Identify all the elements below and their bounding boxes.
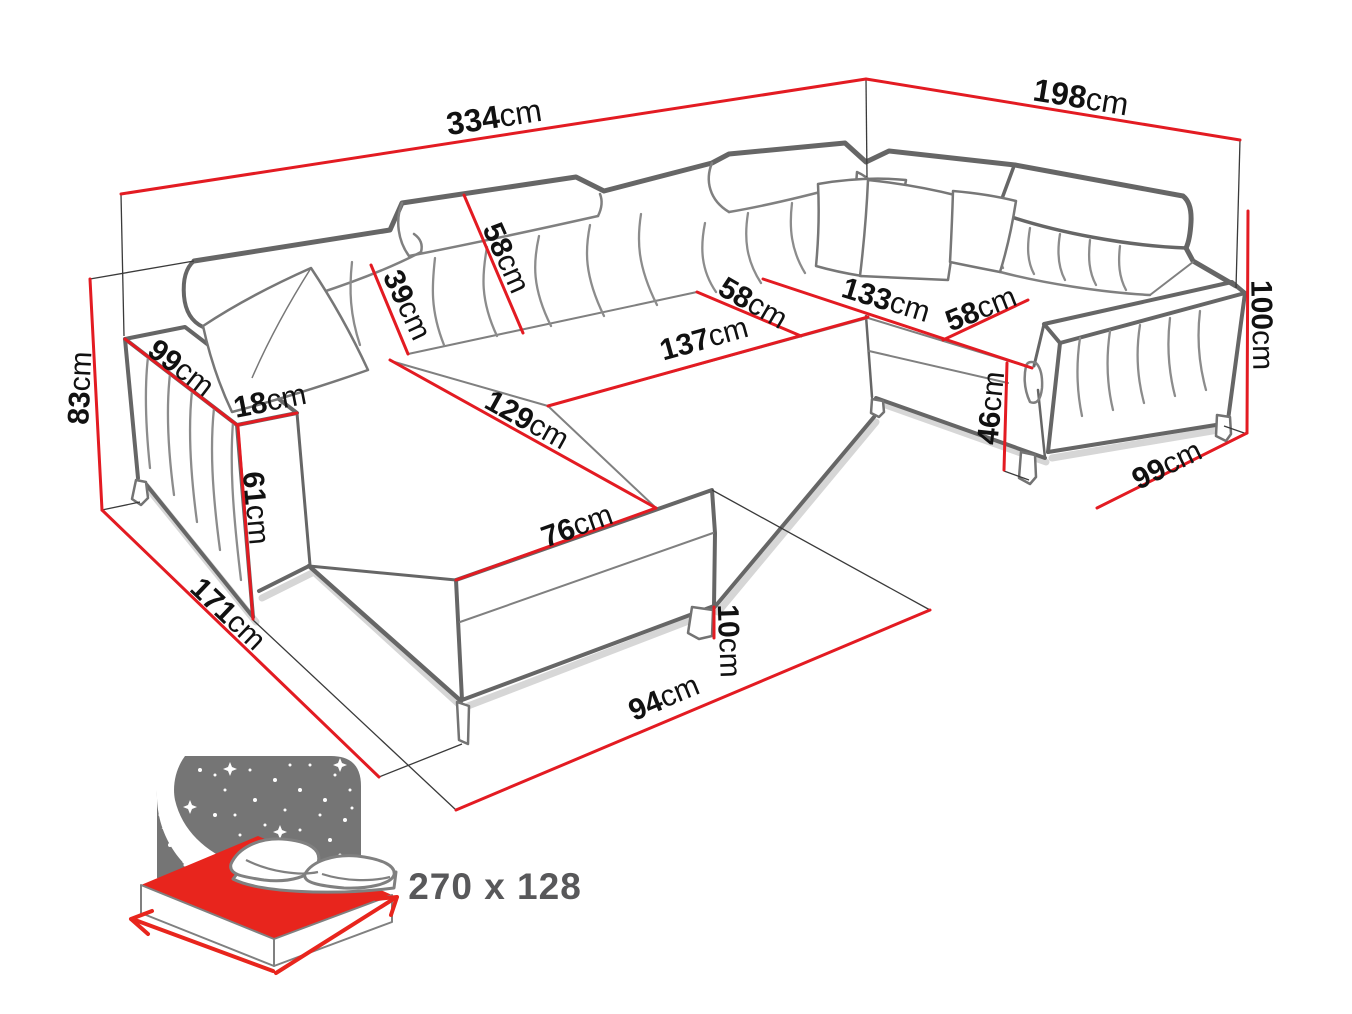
svg-text:270 x 128: 270 x 128 <box>408 866 582 907</box>
svg-text:10cm: 10cm <box>711 604 747 678</box>
svg-text:61cm: 61cm <box>236 470 275 546</box>
svg-text:100cm: 100cm <box>1245 280 1280 371</box>
svg-text:83cm: 83cm <box>62 350 99 425</box>
